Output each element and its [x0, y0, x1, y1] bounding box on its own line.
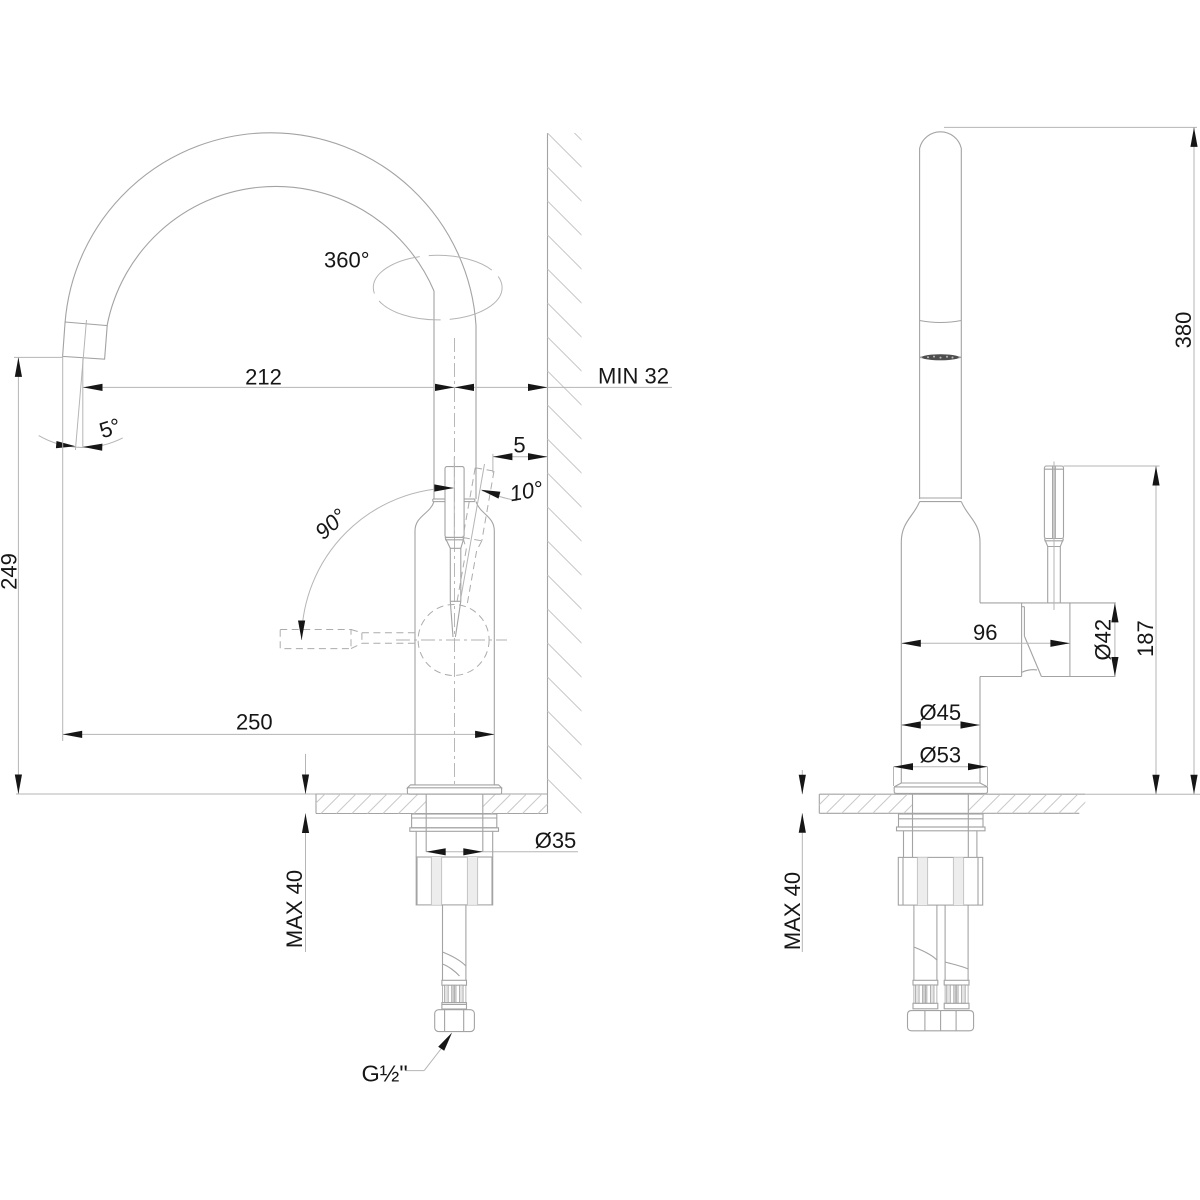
svg-text:MAX 40: MAX 40 [780, 872, 805, 950]
svg-text:187: 187 [1133, 620, 1158, 657]
svg-text:250: 250 [236, 710, 273, 735]
svg-text:Ø42: Ø42 [1090, 619, 1115, 661]
svg-text:360°: 360° [324, 248, 370, 273]
svg-text:5: 5 [513, 433, 525, 458]
svg-text:Ø53: Ø53 [920, 742, 962, 767]
svg-text:249: 249 [0, 553, 21, 590]
svg-text:212: 212 [245, 365, 282, 390]
svg-text:96: 96 [973, 620, 997, 645]
svg-text:MAX 40: MAX 40 [282, 870, 307, 948]
svg-text:G½": G½" [362, 1061, 408, 1087]
svg-text:Ø45: Ø45 [920, 700, 962, 725]
svg-text:MIN 32: MIN 32 [598, 364, 669, 389]
svg-text:Ø35: Ø35 [535, 828, 577, 853]
svg-text:380: 380 [1171, 312, 1196, 349]
